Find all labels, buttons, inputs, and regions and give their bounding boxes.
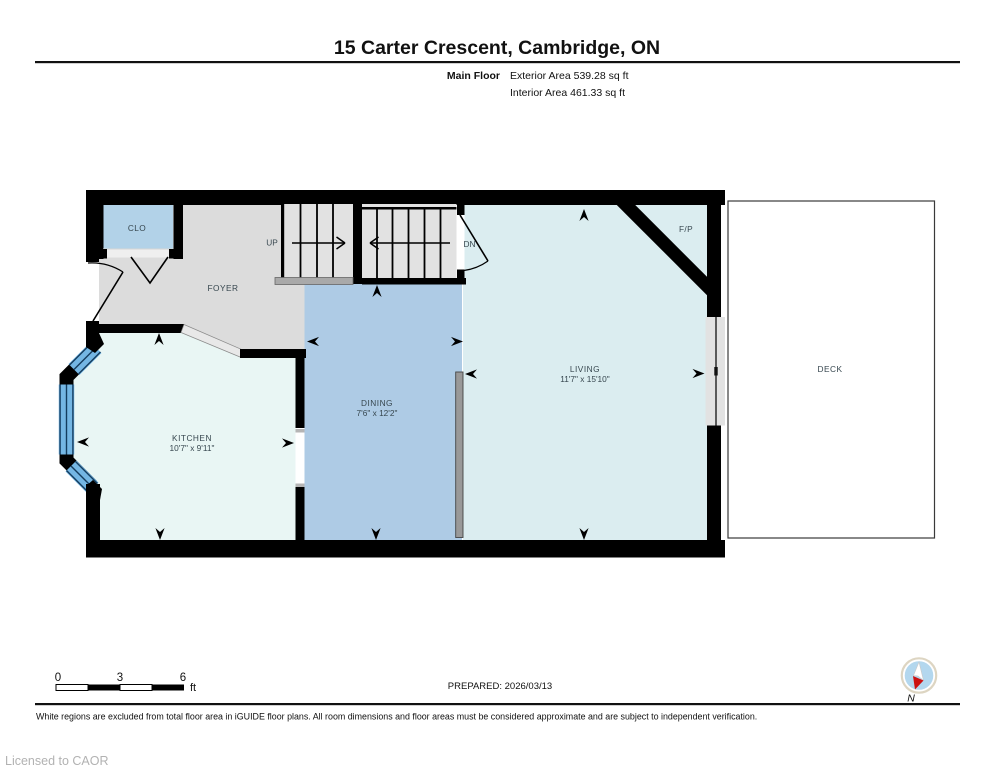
- svg-text:Interior Area 461.33 sq ft: Interior Area 461.33 sq ft: [510, 87, 625, 99]
- svg-text:LIVING: LIVING: [570, 364, 600, 374]
- svg-text:15 Carter Crescent, Cambridge,: 15 Carter Crescent, Cambridge, ON: [334, 37, 660, 59]
- svg-text:DECK: DECK: [817, 364, 842, 374]
- svg-text:DINING: DINING: [361, 398, 393, 408]
- svg-text:PREPARED: 2026/03/13: PREPARED: 2026/03/13: [448, 681, 552, 692]
- svg-text:Main Floor: Main Floor: [447, 70, 500, 82]
- svg-text:3: 3: [117, 672, 123, 684]
- svg-text:0: 0: [55, 672, 61, 684]
- svg-text:Licensed to CAOR: Licensed to CAOR: [5, 754, 109, 768]
- svg-text:ft: ft: [190, 682, 196, 694]
- svg-text:10'7" x 9'11": 10'7" x 9'11": [170, 443, 215, 453]
- svg-text:7'6" x 12'2": 7'6" x 12'2": [357, 408, 398, 418]
- svg-text:CLO: CLO: [128, 223, 146, 233]
- svg-text:FOYER: FOYER: [207, 283, 238, 293]
- svg-text:KITCHEN: KITCHEN: [172, 433, 212, 443]
- svg-text:6: 6: [180, 672, 186, 684]
- svg-text:White regions are excluded fro: White regions are excluded from total fl…: [36, 712, 757, 722]
- svg-text:Exterior Area 539.28 sq ft: Exterior Area 539.28 sq ft: [510, 70, 629, 82]
- svg-text:N: N: [907, 693, 915, 705]
- svg-text:11'7" x 15'10": 11'7" x 15'10": [560, 374, 610, 384]
- svg-text:F/P: F/P: [679, 224, 693, 234]
- svg-text:DN: DN: [464, 239, 476, 249]
- svg-text:UP: UP: [266, 238, 278, 248]
